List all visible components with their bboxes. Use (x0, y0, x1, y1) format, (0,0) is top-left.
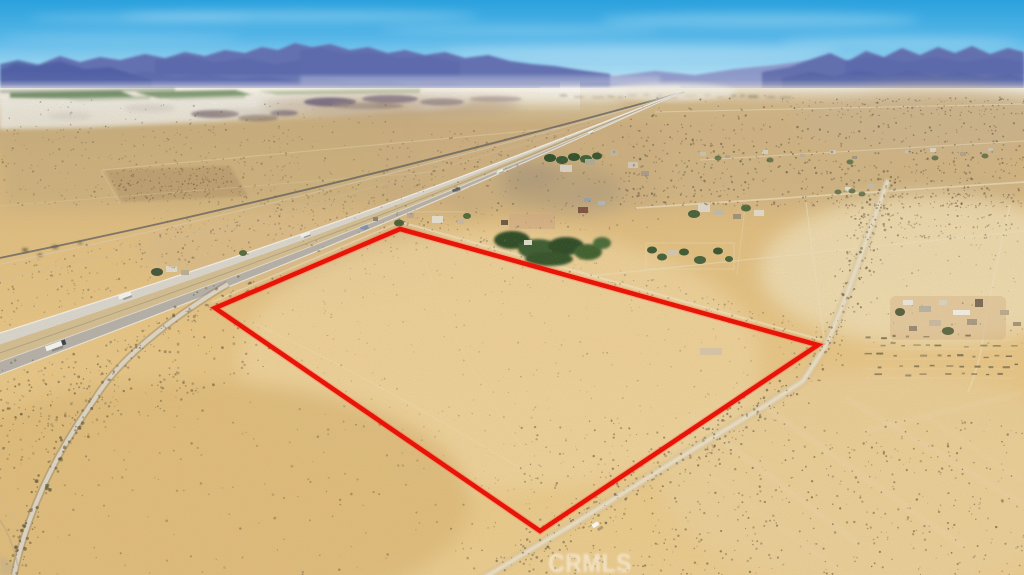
svg-text:CRMLS: CRMLS (548, 550, 631, 575)
